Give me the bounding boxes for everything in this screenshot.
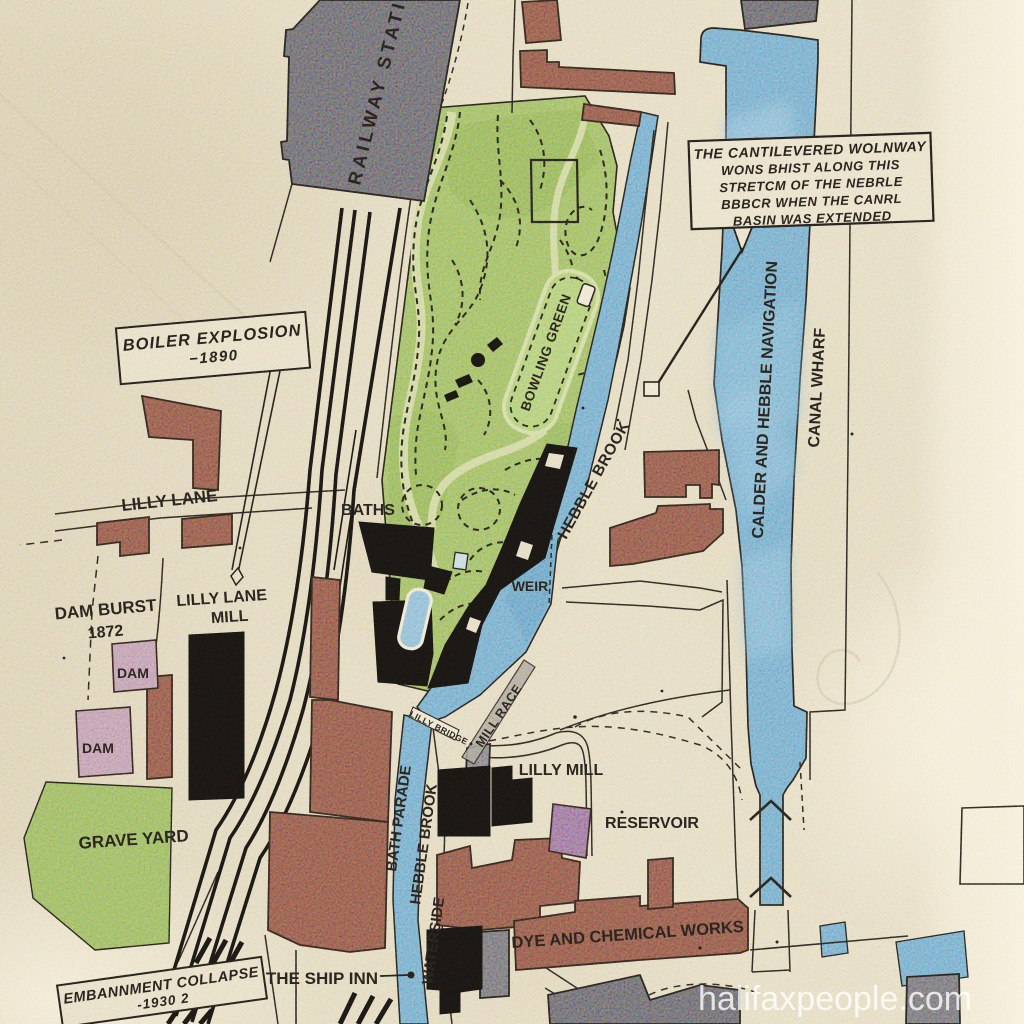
svg-text:halifaxpeople.com: halifaxpeople.com (698, 980, 972, 1018)
